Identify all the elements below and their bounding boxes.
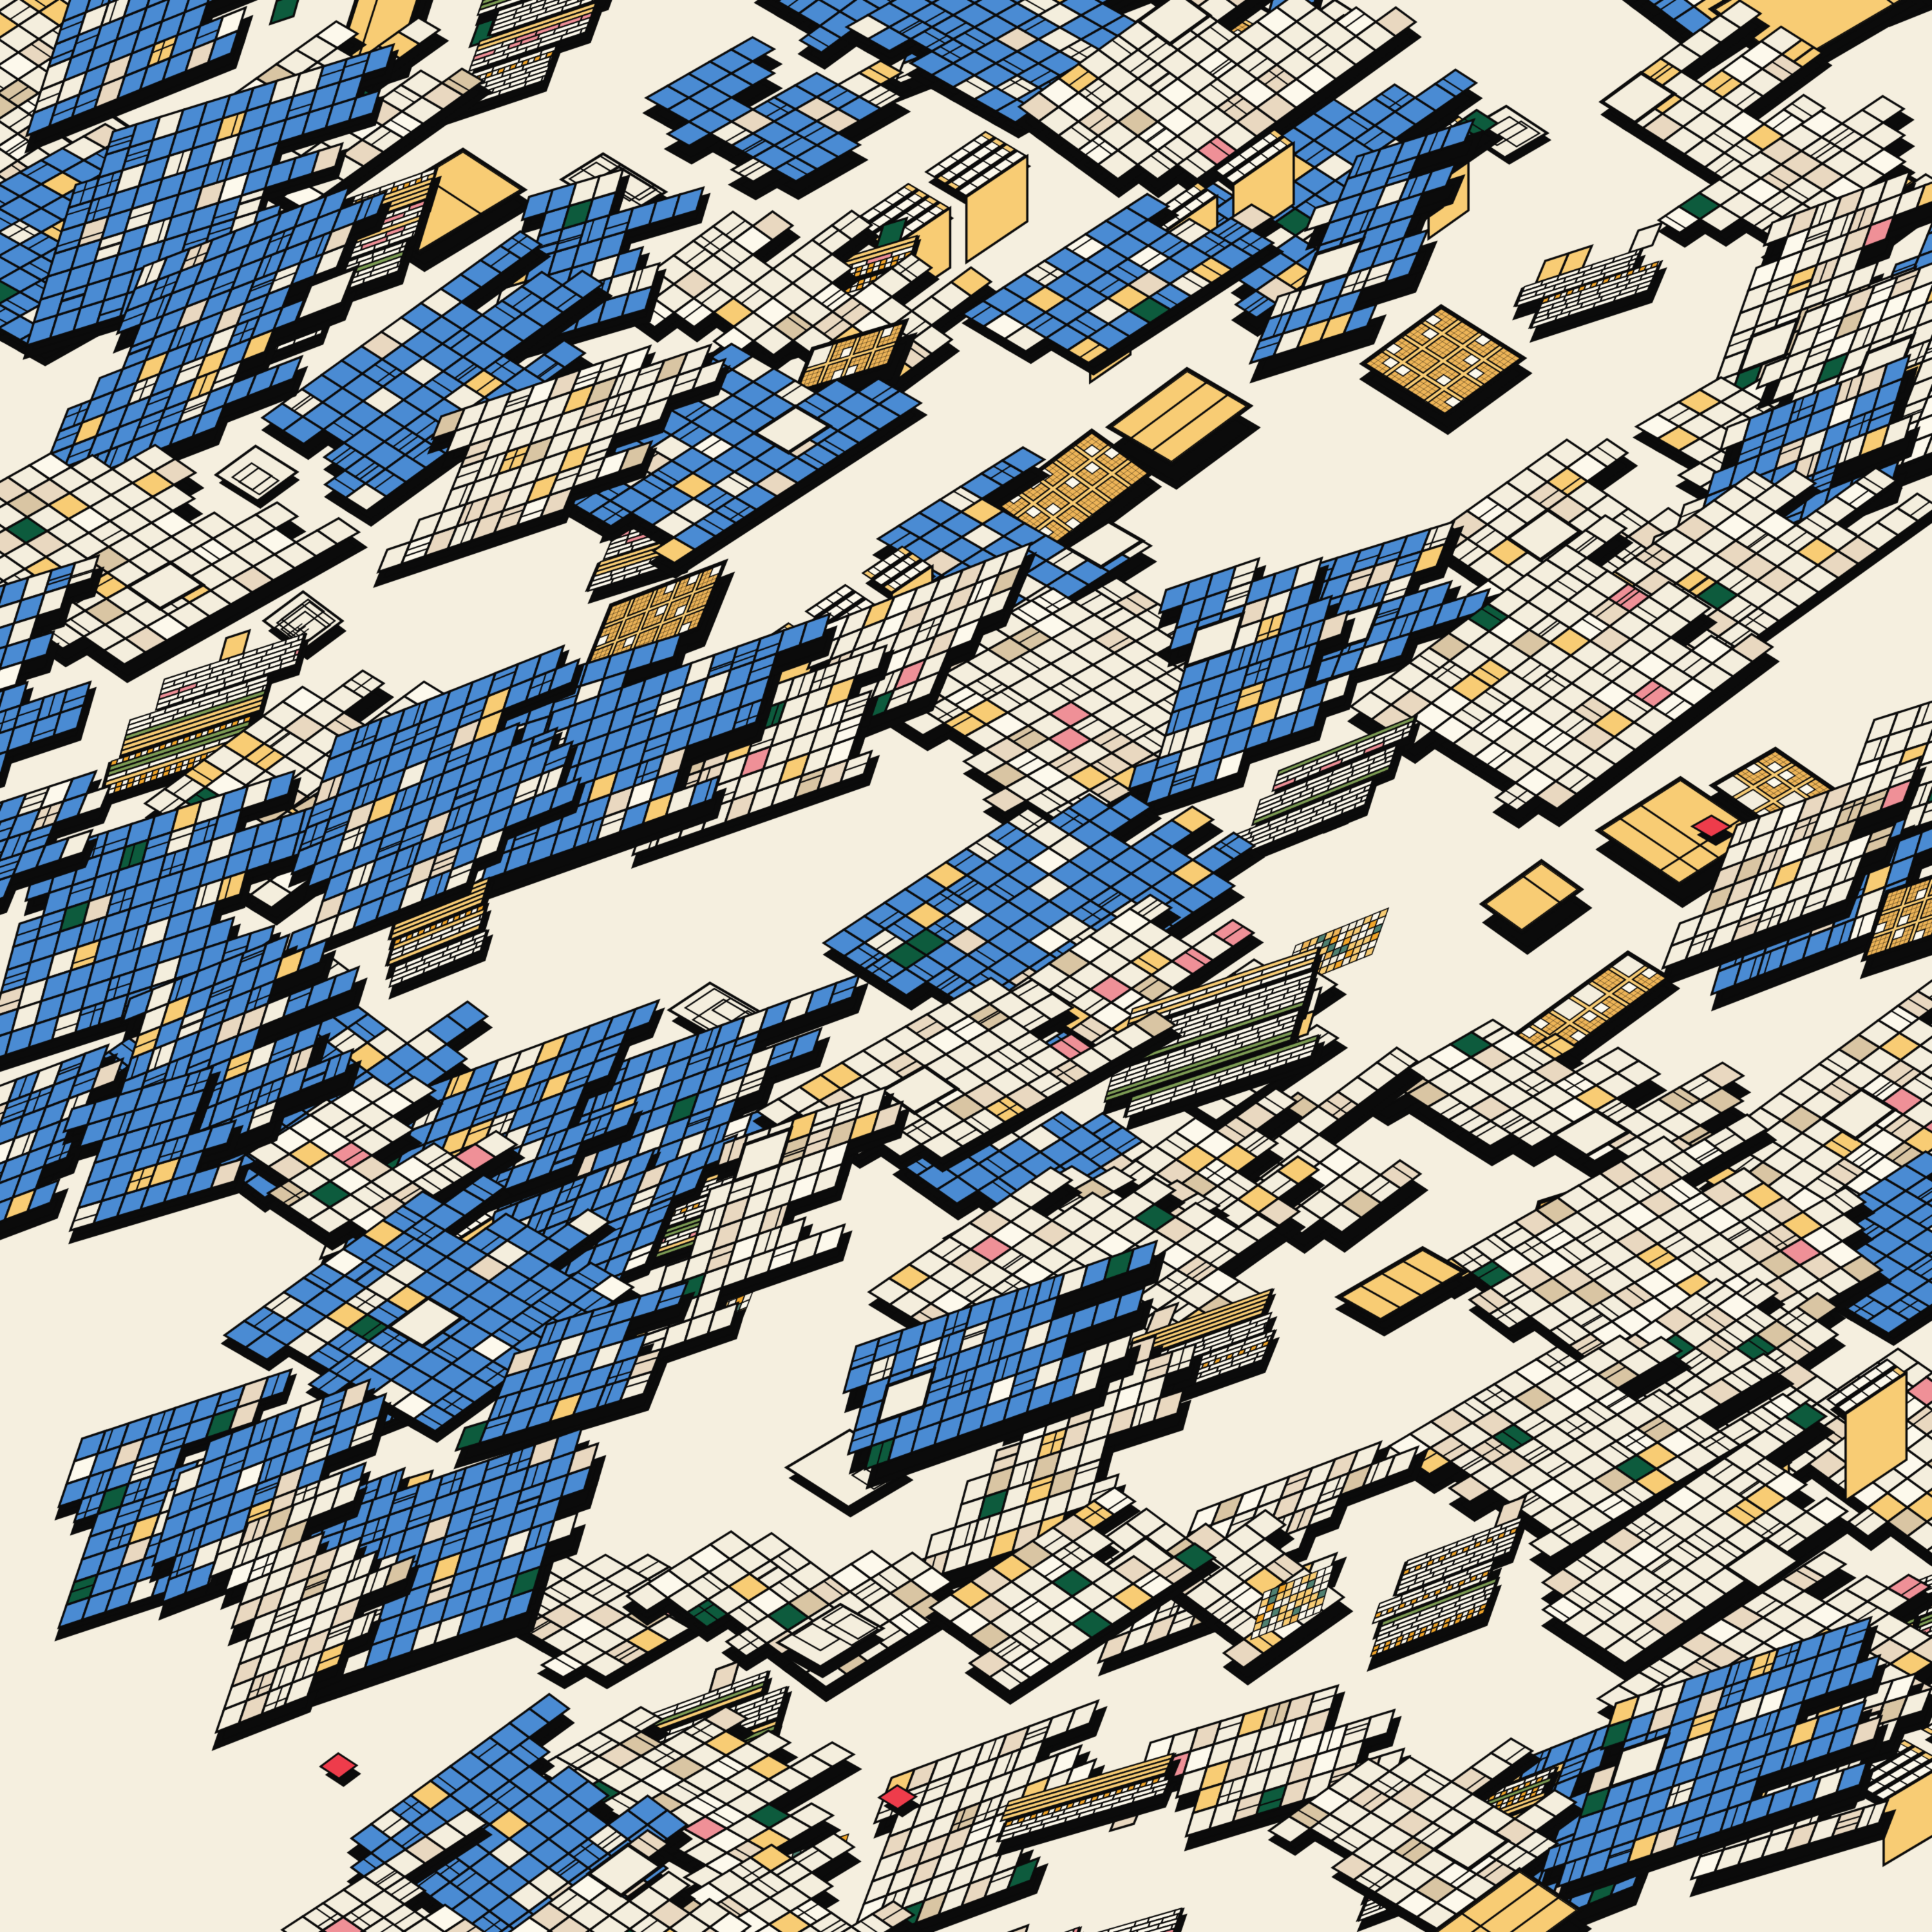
generative-artwork: [0, 0, 1932, 1932]
isometric-pattern-canvas: [0, 0, 1932, 1932]
